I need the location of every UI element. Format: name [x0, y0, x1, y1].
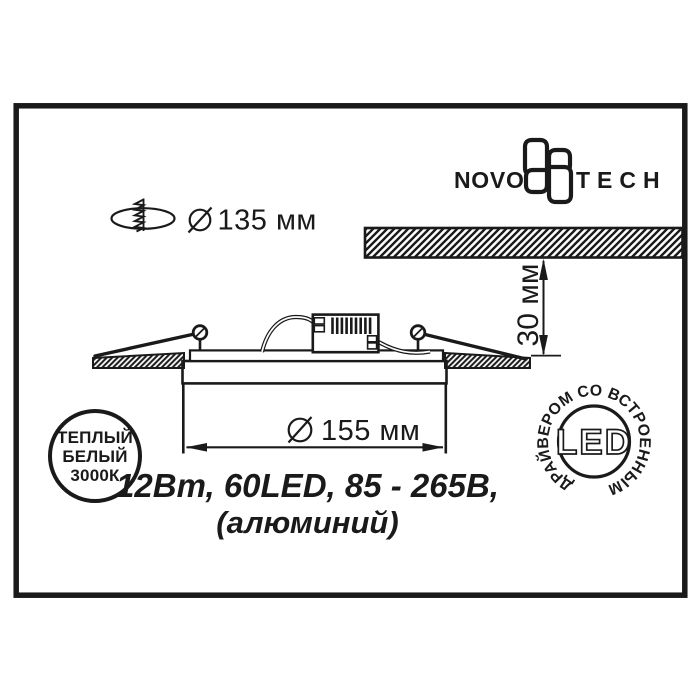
cutout-diameter-label: 135 мм: [218, 205, 317, 237]
trim-ring: [183, 361, 447, 383]
technical-drawing: 155 мм 135 мм 30 мм ДРАЙВЕРОМ СО ВСТРОЕН…: [0, 0, 700, 700]
cutout-callout: 135 мм: [112, 199, 317, 237]
logo-text-left: NOVO: [454, 169, 525, 192]
logo-text-right: TECH: [576, 169, 667, 192]
dimension-body-diameter: 155 мм: [186, 415, 444, 452]
spec-text: 12Вт, 60LED, 85 - 265В, (алюминий): [100, 467, 515, 540]
driver-vents: [333, 318, 371, 335]
arrowhead-left-icon: [186, 443, 207, 452]
ceiling-cross-section: [365, 228, 683, 258]
arrowhead-right-icon: [423, 443, 444, 452]
body-diameter-label: 155 мм: [321, 415, 420, 447]
led-driver-badge: ДРАЙВЕРОМ СО ВСТРОЕННЫМ LED: [534, 382, 653, 497]
petal-bottom-left: [526, 170, 547, 192]
color-temp-line1: ТЕПЛЫЙ: [57, 428, 133, 447]
diameter-icon: [289, 417, 312, 443]
led-badge-label: LED: [556, 423, 632, 462]
diameter-icon: [189, 208, 212, 233]
driver-wire-left: [262, 317, 314, 352]
mounting-hole-icon: [112, 199, 175, 232]
novotech-flower-icon: [525, 140, 571, 202]
screw-icon: [135, 199, 144, 232]
led-driver-box: [313, 315, 379, 353]
spec-sheet: 155 мм 135 мм 30 мм ДРАЙВЕРОМ СО ВСТРОЕН…: [0, 0, 700, 700]
trim-flange-left: [93, 353, 184, 368]
petal-bottom-right: [549, 167, 571, 202]
spec-line-primary: 12Вт, 60LED, 85 - 265В,: [100, 467, 515, 504]
color-temp-line2: БЕЛЫЙ: [62, 447, 127, 466]
spec-line-material: (алюминий): [100, 506, 515, 540]
recess-depth-label: 30 мм: [512, 264, 545, 347]
